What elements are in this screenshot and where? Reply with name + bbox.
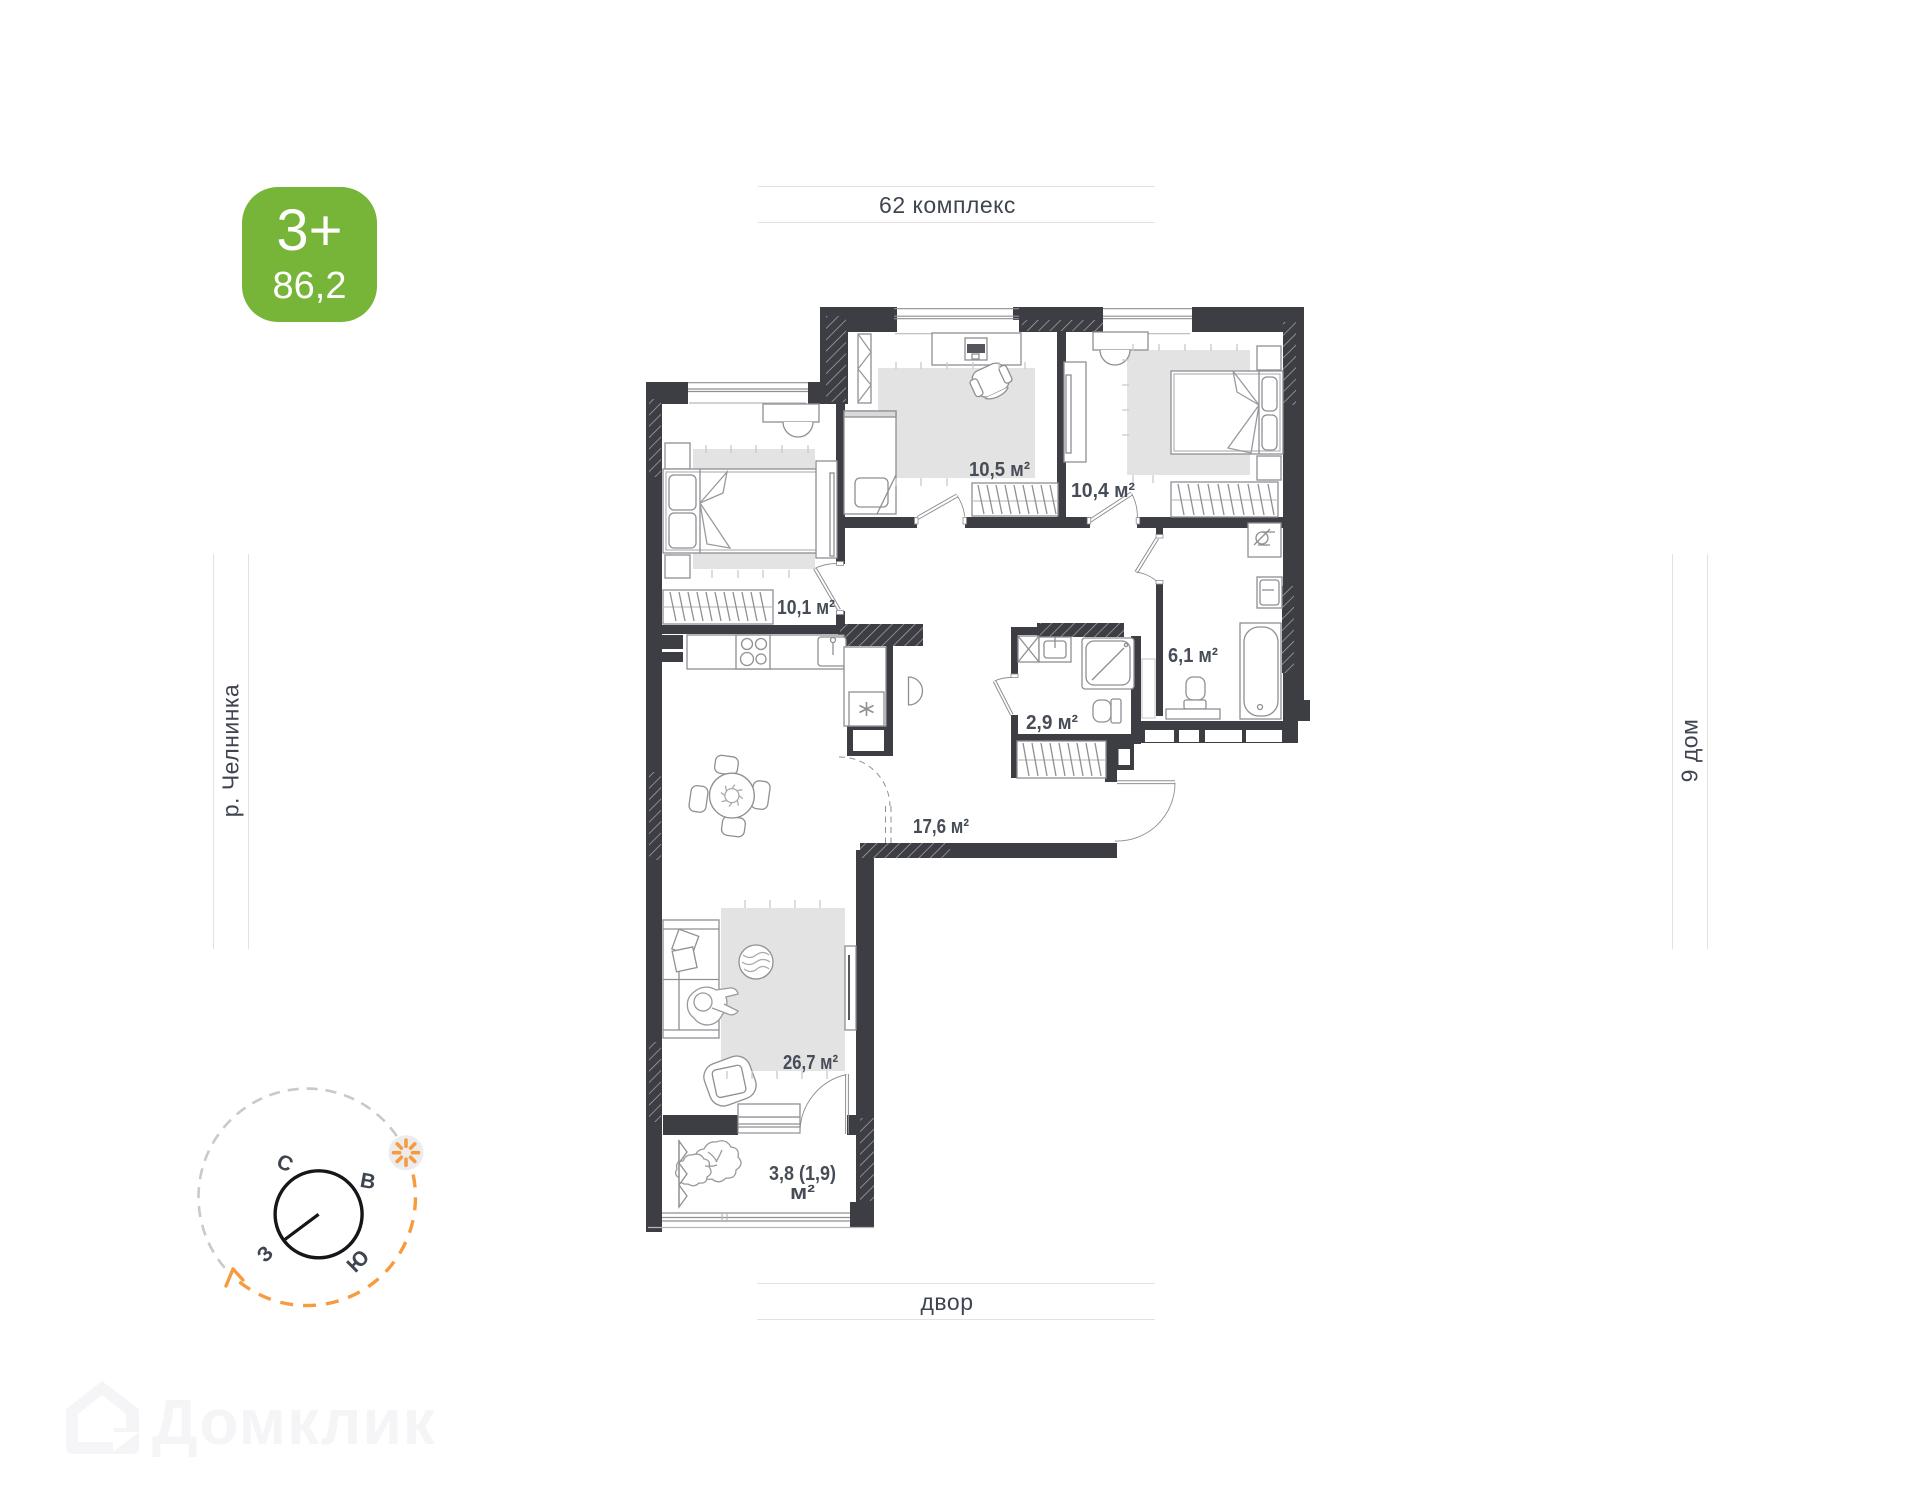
- svg-text:м²: м²: [790, 1182, 815, 1204]
- svg-text:В: В: [358, 1169, 377, 1194]
- svg-text:Ю: Ю: [343, 1246, 375, 1278]
- svg-text:С: С: [273, 1150, 296, 1177]
- svg-text:Домклик: Домклик: [152, 1386, 436, 1458]
- svg-text:2,9 м²: 2,9 м²: [1026, 712, 1078, 734]
- svg-text:10,4 м²: 10,4 м²: [1071, 480, 1135, 502]
- svg-text:10,5 м²: 10,5 м²: [969, 459, 1030, 481]
- svg-text:17,6 м²: 17,6 м²: [913, 816, 969, 838]
- svg-text:6,1 м²: 6,1 м²: [1168, 645, 1218, 667]
- svg-text:26,7 м²: 26,7 м²: [783, 1052, 838, 1074]
- svg-text:10,1 м²: 10,1 м²: [777, 597, 835, 619]
- svg-text:З: З: [253, 1242, 279, 1268]
